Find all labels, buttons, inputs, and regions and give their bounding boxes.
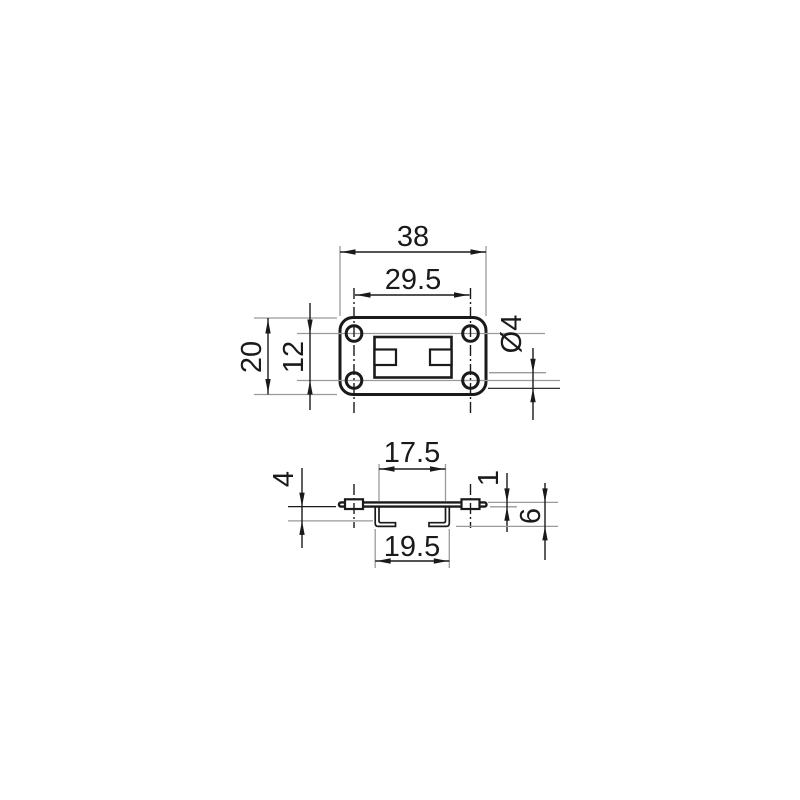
dim-arrowhead xyxy=(530,359,535,373)
dim-arrowhead xyxy=(299,493,304,507)
dim-arrowhead xyxy=(265,379,270,393)
dim-arrowhead xyxy=(504,488,509,502)
dim-label-tab-inner-spacing: 17.5 xyxy=(384,437,440,469)
dim-label-hole-spacing-vertical: 12 xyxy=(278,341,310,373)
dim-label-overall-width: 38 xyxy=(397,221,429,253)
dim-arrowhead xyxy=(307,381,312,395)
dim-arrowhead xyxy=(471,249,485,254)
dim-arrowhead xyxy=(357,292,371,297)
dim-label-overall-depth: 6 xyxy=(515,508,547,524)
side-view-right-hook xyxy=(429,506,449,526)
dim-arrowhead xyxy=(542,526,547,540)
dim-arrowhead xyxy=(454,292,468,297)
dim-label-plate-thickness: 1 xyxy=(473,470,505,486)
dim-arrowhead xyxy=(542,488,547,502)
side-view: 17.5 19.5 4 1 6 xyxy=(268,437,558,568)
dim-label-tab-outer-spacing: 19.5 xyxy=(384,531,440,563)
technical-drawing: 38 29.5 20 12 Ø4 xyxy=(0,0,800,800)
dim-arrowhead xyxy=(342,249,356,254)
top-view-right-tab xyxy=(430,350,452,366)
drawing-canvas: 38 29.5 20 12 Ø4 xyxy=(0,0,800,800)
dim-label-overall-height: 20 xyxy=(236,341,268,373)
dim-arrowhead xyxy=(530,388,535,402)
dim-label-hole-diameter: Ø4 xyxy=(496,315,528,354)
dim-arrowhead xyxy=(504,507,509,521)
dim-arrowhead xyxy=(307,320,312,334)
top-view-left-tab xyxy=(375,350,397,366)
dim-arrowhead xyxy=(299,521,304,535)
top-view: 38 29.5 20 12 Ø4 xyxy=(236,221,560,420)
dim-arrowhead xyxy=(265,320,270,334)
dim-label-hole-spacing-horizontal: 29.5 xyxy=(385,264,441,296)
dim-label-hook-inner-depth: 4 xyxy=(268,471,300,487)
side-view-left-hook xyxy=(375,506,395,526)
